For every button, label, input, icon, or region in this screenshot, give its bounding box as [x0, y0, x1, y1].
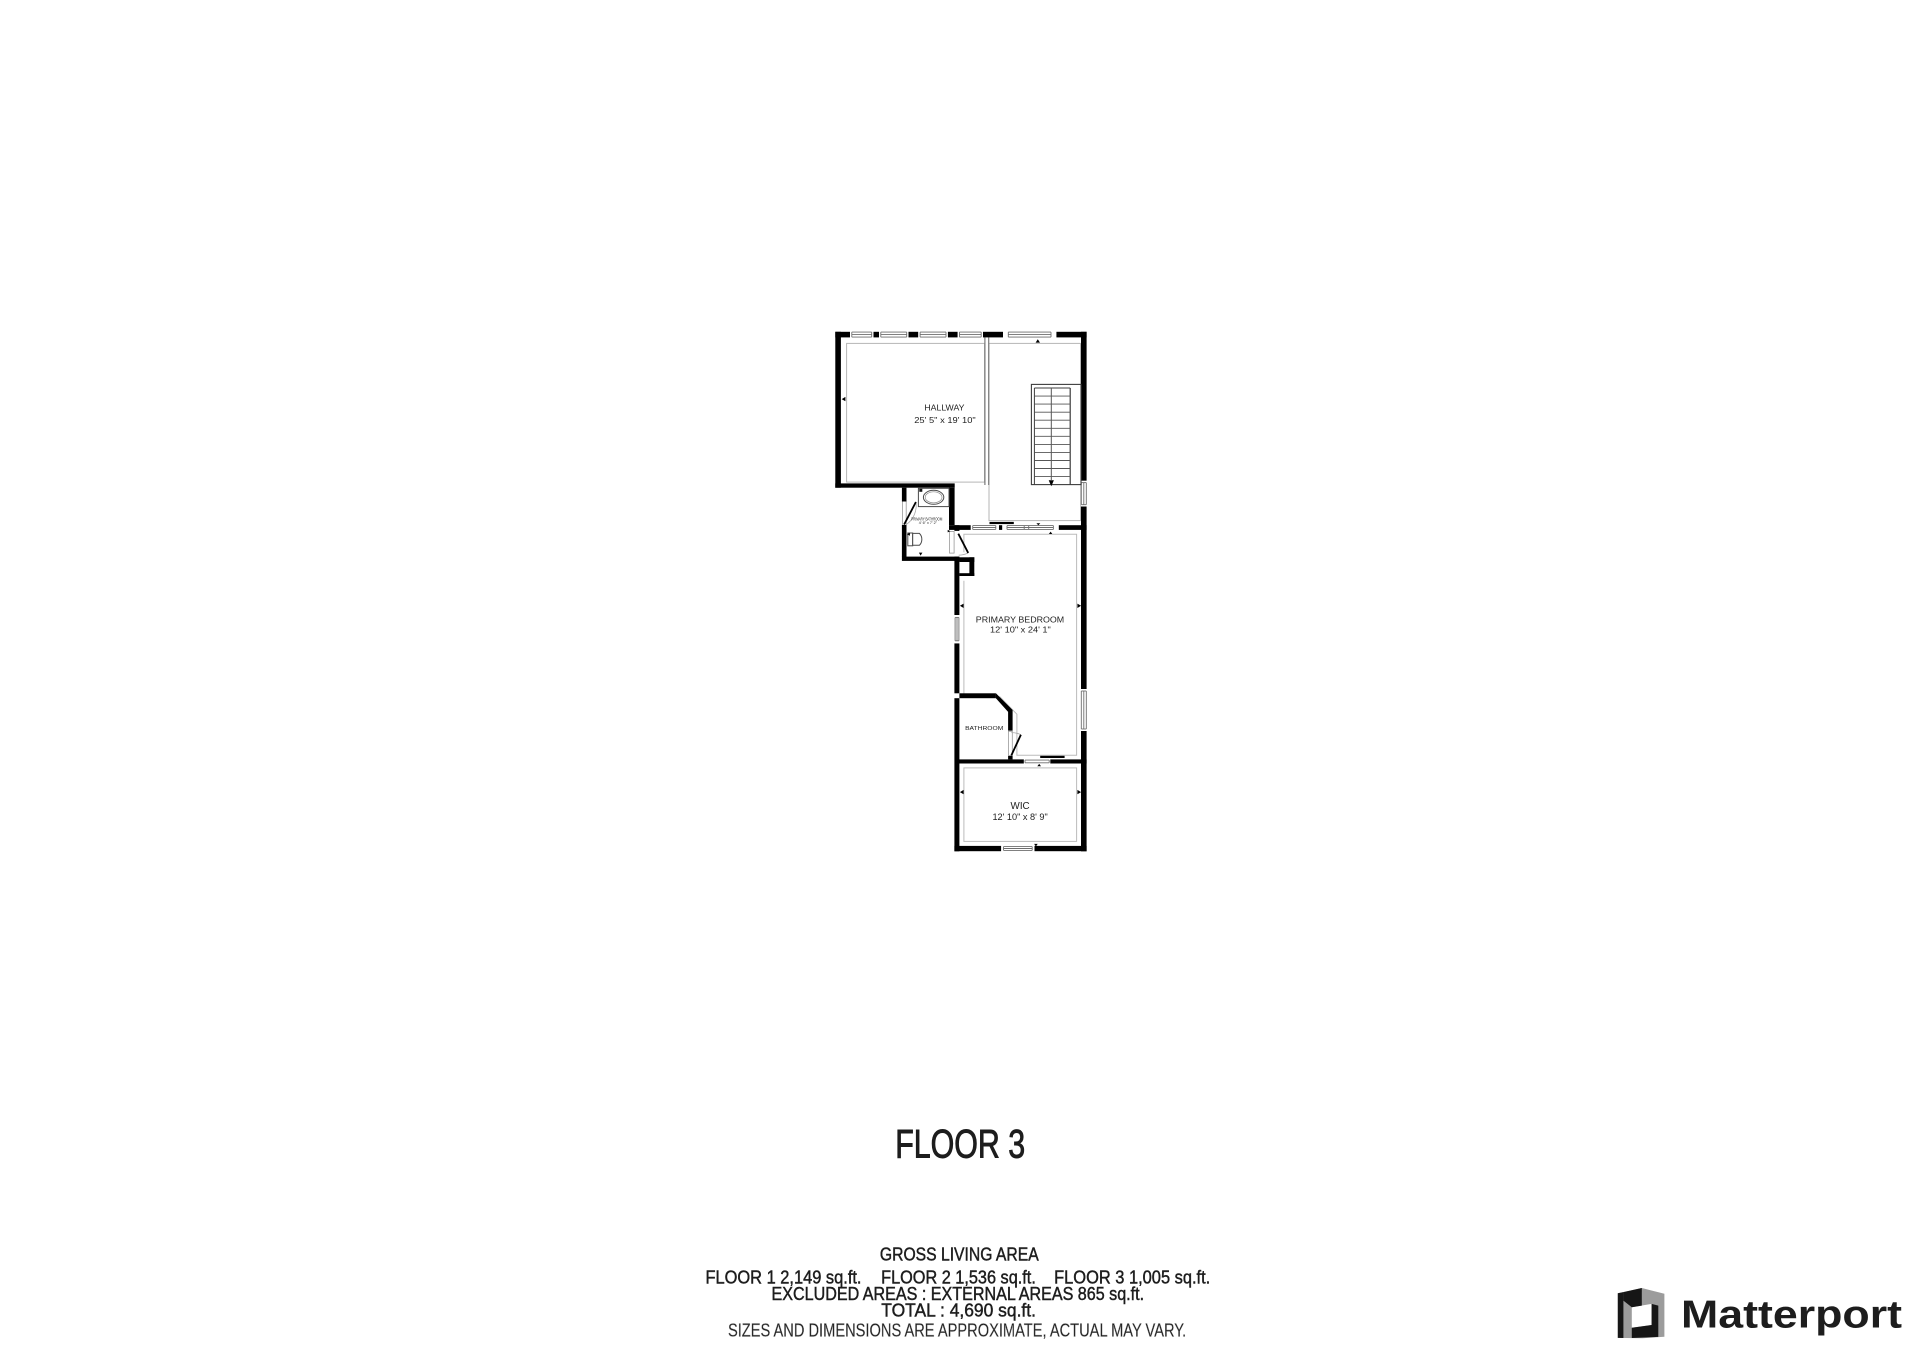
- svg-text:PRIMARY BEDROOM: PRIMARY BEDROOM: [976, 615, 1064, 625]
- svg-text:25' 5" x 19' 10": 25' 5" x 19' 10": [914, 416, 976, 425]
- svg-text:12' 10" x 8' 9": 12' 10" x 8' 9": [992, 812, 1047, 823]
- svg-text:BATHROOM: BATHROOM: [965, 726, 1003, 732]
- svg-text:TOTAL : 4,690 sq.ft.: TOTAL : 4,690 sq.ft.: [881, 1300, 1036, 1321]
- svg-text:SIZES AND DIMENSIONS ARE APPRO: SIZES AND DIMENSIONS ARE APPROXIMATE, AC…: [728, 1320, 1186, 1341]
- svg-text:12' 10" x 24' 1": 12' 10" x 24' 1": [990, 625, 1051, 635]
- svg-text:HALLWAY: HALLWAY: [924, 404, 965, 413]
- svg-text:WIC: WIC: [1011, 801, 1030, 812]
- svg-text:4' 6" x 7' 2": 4' 6" x 7' 2": [919, 521, 938, 525]
- svg-text:GROSS LIVING AREA: GROSS LIVING AREA: [880, 1244, 1039, 1265]
- svg-text:FLOOR 3: FLOOR 3: [895, 1122, 1025, 1166]
- svg-text:Matterport: Matterport: [1681, 1294, 1902, 1337]
